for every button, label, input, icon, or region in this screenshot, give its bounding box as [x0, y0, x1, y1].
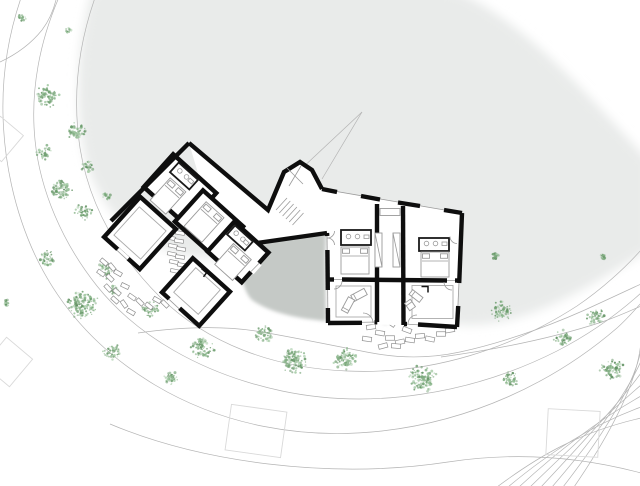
bed [341, 247, 369, 274]
tree [408, 365, 437, 393]
tree [4, 299, 10, 307]
tree [65, 27, 72, 34]
tree [553, 329, 572, 346]
bathroom-vanity [419, 238, 449, 251]
bed [421, 252, 449, 277]
tree [599, 359, 625, 380]
bathroom-vanity [341, 230, 371, 245]
site-plan [0, 0, 640, 486]
tree [190, 337, 216, 358]
tree [18, 14, 27, 22]
tree [586, 309, 606, 325]
site-plan-canvas [0, 0, 640, 486]
tree [36, 84, 60, 108]
tree [164, 371, 178, 385]
tree [67, 291, 99, 320]
tree [333, 347, 358, 371]
tree [282, 348, 306, 374]
tree [51, 180, 73, 200]
tree [39, 250, 55, 266]
tree [74, 204, 93, 221]
tree [102, 344, 121, 361]
